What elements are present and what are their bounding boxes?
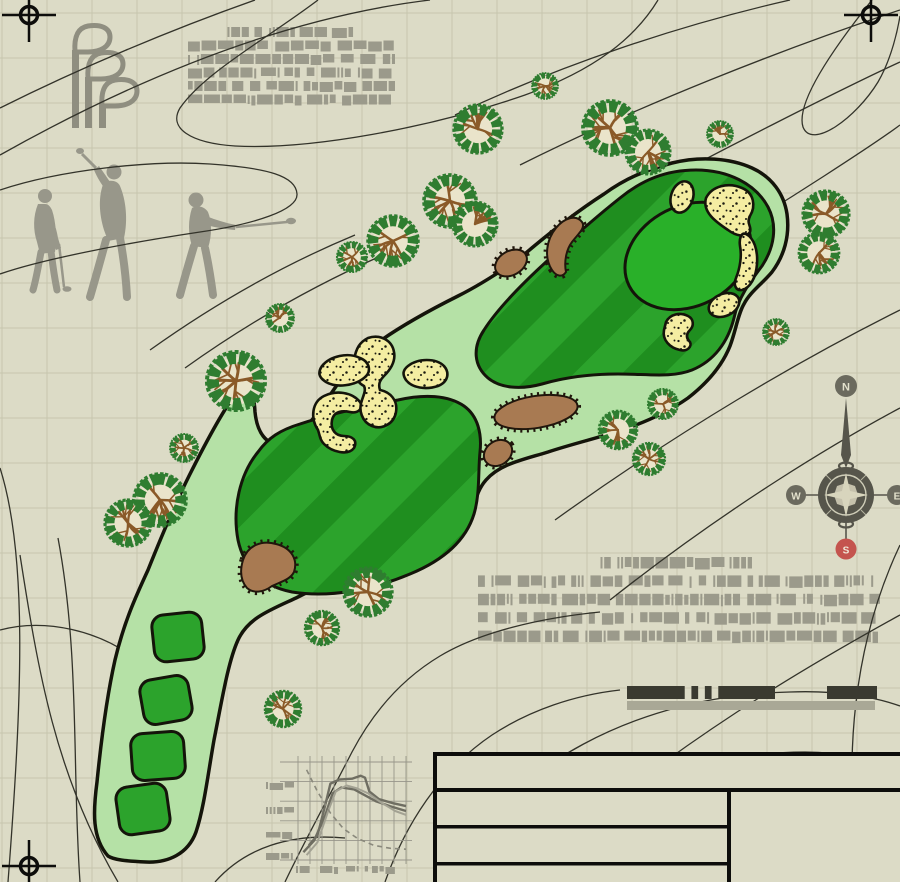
bunker [404, 360, 448, 388]
scale-bar-segment [725, 686, 775, 699]
tee-box [151, 611, 206, 663]
scale-bar [627, 686, 877, 710]
scale-bar-base [627, 701, 875, 710]
scale-bar-segment [627, 686, 678, 699]
golf-course-plan-sheet: N W E S [0, 0, 900, 882]
title-block [435, 754, 900, 882]
compass-south-label: S [843, 546, 850, 557]
tee-box [138, 674, 194, 727]
tee-box [130, 731, 186, 782]
scale-bar-segment [827, 686, 877, 699]
compass-west-label: W [791, 492, 801, 503]
compass-east-label: E [894, 492, 900, 503]
plan-drawing: N W E S [0, 0, 900, 882]
golf-club-head [286, 218, 296, 224]
compass-north-label: N [842, 382, 850, 394]
bunker [664, 314, 693, 350]
golf-club-head [63, 286, 72, 292]
tee-box [114, 782, 171, 837]
golf-club-head [76, 148, 84, 154]
